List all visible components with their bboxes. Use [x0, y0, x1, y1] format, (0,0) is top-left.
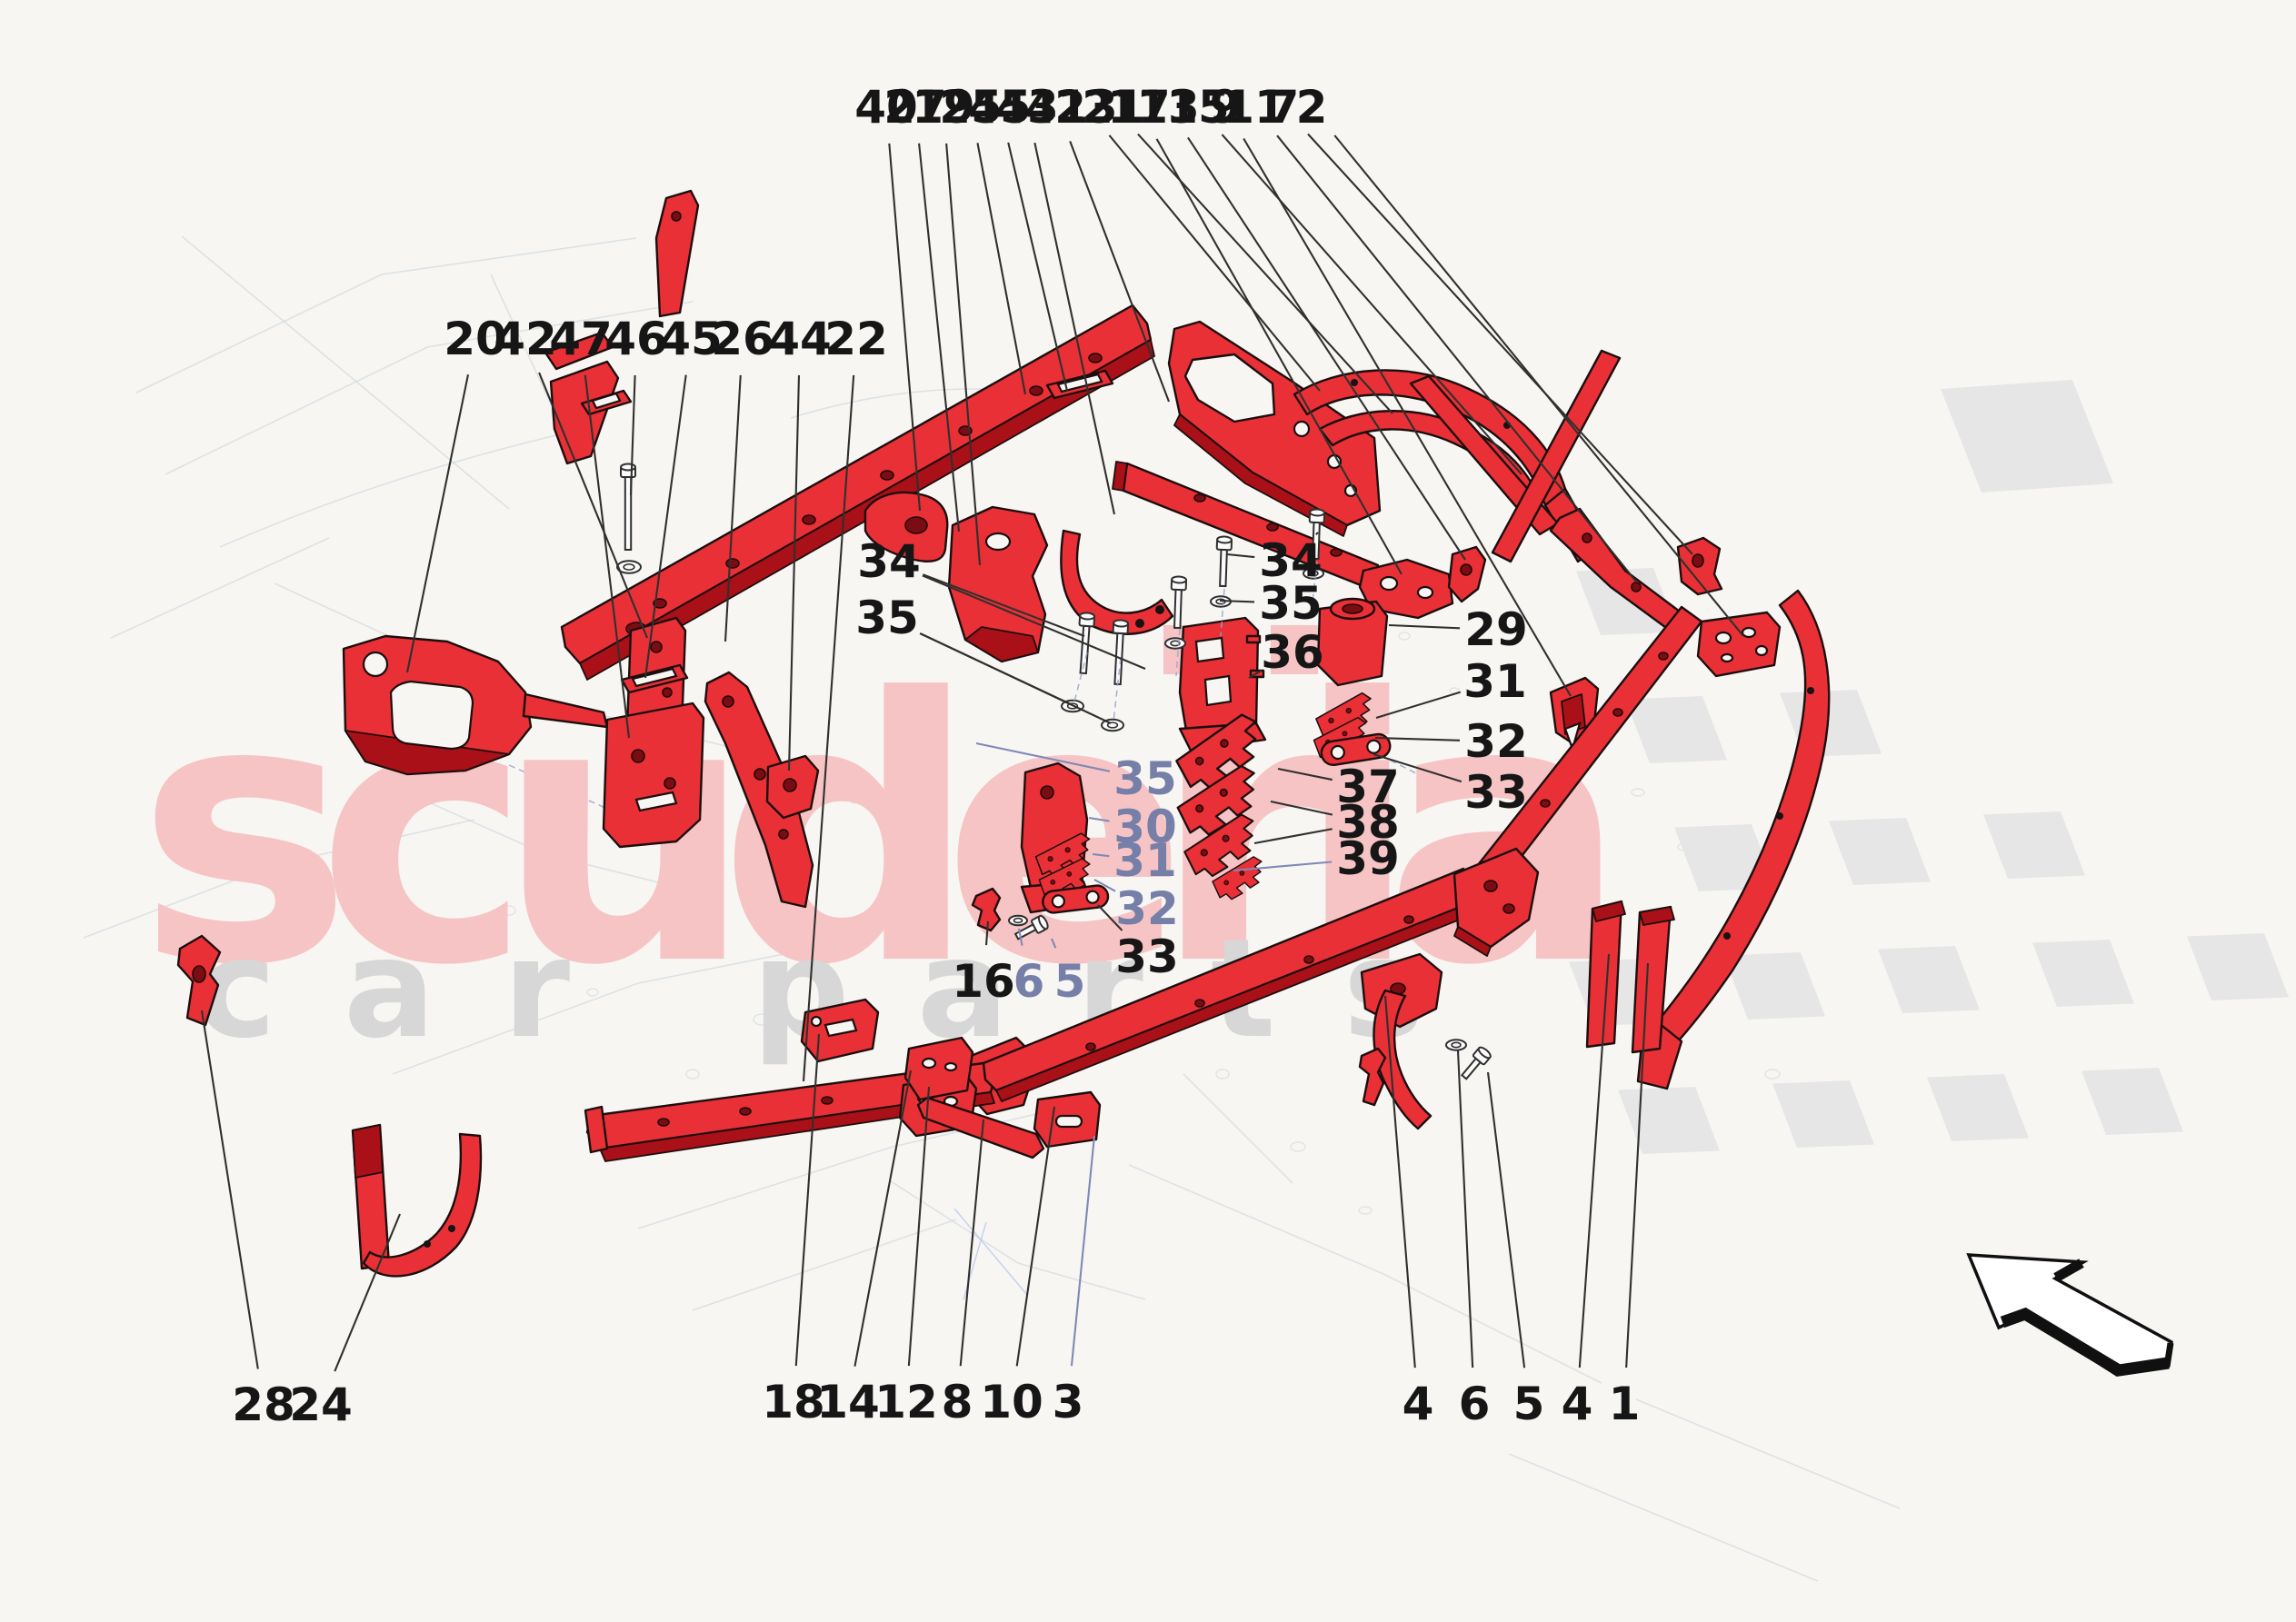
callout-label-10: 10 [980, 1376, 1043, 1428]
leader-line [1227, 554, 1254, 557]
callout-label-3: 3 [1053, 1376, 1084, 1428]
leader-line [946, 144, 980, 565]
callout-label-26: 26 [711, 313, 774, 365]
callout-label-39: 39 [1336, 832, 1400, 885]
leader-line [1488, 1072, 1524, 1368]
callout-label-28: 28 [232, 1378, 295, 1431]
washer [1165, 638, 1185, 648]
callout-label-14: 14 [816, 1376, 880, 1428]
bolt [621, 464, 635, 551]
part-beam-end-14 [905, 1038, 973, 1100]
callout-label-4: 4 [1562, 1378, 1593, 1430]
leader-line [1072, 1136, 1094, 1366]
leader-line [1220, 601, 1254, 602]
washer [1446, 1040, 1466, 1050]
callout-label-2: 2 [1296, 81, 1328, 134]
callout-label-32: 32 [1464, 715, 1528, 768]
callout-label-6: 6 [1013, 955, 1045, 1008]
callout-label-8: 8 [942, 1376, 973, 1428]
flag-diamond [1780, 690, 1882, 757]
callout-label-35: 35 [855, 592, 919, 644]
direction-arrow-icon [1969, 1255, 2171, 1375]
leader-line [1458, 1050, 1472, 1368]
callout-label-32: 32 [1115, 882, 1179, 935]
part-foot-bracket-44 [767, 756, 818, 818]
callout-label-47: 47 [549, 313, 613, 365]
leader-line [796, 1034, 819, 1366]
callout-label-7: 7 [1268, 81, 1300, 134]
callout-label-29: 29 [1464, 603, 1528, 656]
callout-label-5: 5 [1513, 1378, 1545, 1430]
part-j-hook [1061, 531, 1173, 634]
washer [1009, 916, 1027, 925]
bolt [1215, 536, 1232, 586]
flag-diamond [1927, 1074, 2029, 1141]
flag-diamond [2187, 933, 2289, 1000]
flag-diamond [1625, 696, 1727, 763]
part-hook-bracket-24 [353, 1125, 481, 1276]
flag-diamond [1878, 946, 1980, 1013]
callout-label-42: 42 [494, 313, 557, 365]
callout-label-24: 24 [289, 1378, 353, 1431]
exploded-diagram-svg: scuderia car parts [0, 0, 2296, 1622]
flag-diamond [1772, 1080, 1874, 1148]
callout-label-35: 35 [1259, 577, 1323, 630]
callout-label-12: 12 [874, 1376, 938, 1428]
callout-label-22: 22 [824, 313, 888, 365]
part-hook-13 [1449, 547, 1485, 602]
callout-label-44: 44 [768, 313, 832, 365]
callout-label-6: 6 [1459, 1378, 1491, 1430]
callout-label-16: 16 [952, 955, 1015, 1008]
part-mount-bracket-29 [1318, 599, 1387, 685]
flag-diamond [2081, 1068, 2183, 1135]
part-plate-47 [604, 703, 704, 847]
callout-label-36: 36 [1261, 626, 1324, 679]
flag-diamond [1618, 1087, 1720, 1154]
callout-label-31: 31 [1463, 655, 1527, 708]
flag-diamond [1941, 380, 2113, 493]
callout-label-33: 33 [1115, 930, 1179, 983]
callout-label-34: 34 [857, 535, 921, 588]
callout-label-33: 33 [1464, 766, 1528, 819]
callout-label-35: 35 [1113, 752, 1177, 805]
callout-label-1: 1 [1609, 1378, 1641, 1430]
bolt [1170, 576, 1186, 628]
callout-label-4: 4 [1403, 1378, 1434, 1430]
part-pillar-sliver [656, 191, 698, 316]
parts-diagram-canvas: scuderia car parts [0, 0, 2296, 1622]
flag-diamond [1983, 811, 2085, 879]
leader-line [725, 375, 741, 642]
part-plate-2 [1698, 612, 1780, 676]
flag-diamond [2032, 940, 2134, 1007]
callout-label-5: 5 [1054, 955, 1086, 1008]
part-plate-10 [1034, 1092, 1100, 1147]
callout-label-31: 31 [1113, 834, 1177, 887]
flag-diamond [1829, 818, 1931, 885]
